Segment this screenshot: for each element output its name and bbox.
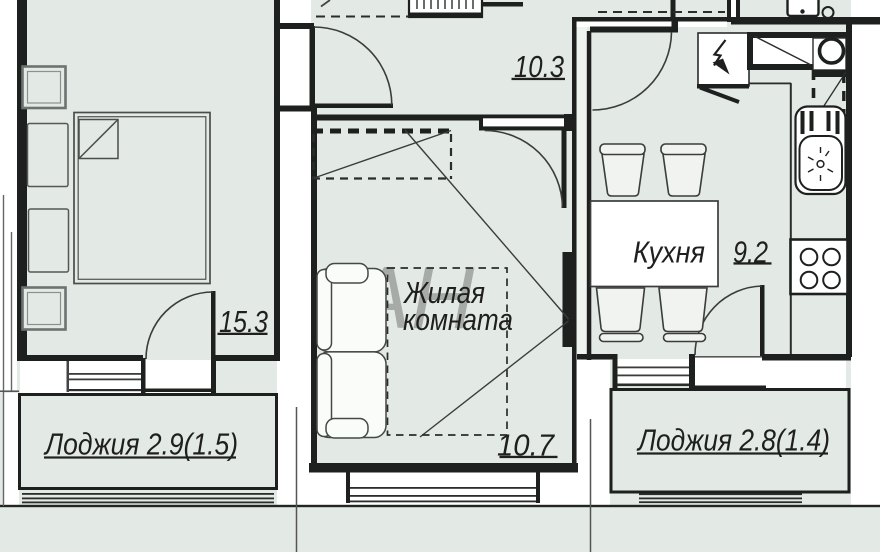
svg-text:Лоджия 2.9(1.5): Лоджия 2.9(1.5) [43,427,238,462]
svg-text:Кухня: Кухня [633,235,705,270]
svg-text:комната: комната [403,302,513,337]
svg-text:Лоджия 2.8(1.4): Лоджия 2.8(1.4) [636,423,830,458]
